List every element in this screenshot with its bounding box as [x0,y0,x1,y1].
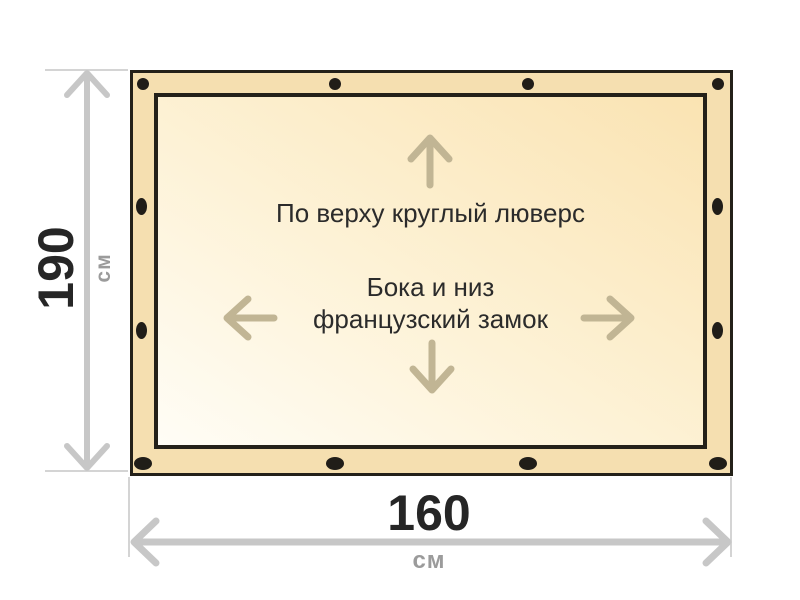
grommet-icon [712,322,723,339]
annotation-sides-line2: французский замок [154,303,707,335]
height-unit-label: см [93,238,115,298]
grommet-icon [329,78,341,90]
grommet-icon [326,457,344,470]
arrow-down-icon [406,339,458,395]
height-value-label: 190 [30,188,82,348]
width-unit-label: см [379,549,479,573]
arrow-up-icon [404,133,456,189]
grommet-icon [712,198,723,215]
grommet-icon [134,457,152,470]
grommet-icon [519,457,537,470]
grommet-icon [522,78,534,90]
grommet-icon [709,457,727,470]
annotation-sides-line1: Бока и низ [154,271,707,303]
annotation-top-grommets: По верху круглый люверс [154,197,707,229]
grommet-icon [137,78,149,90]
grommet-icon [712,78,724,90]
diagram-canvas: По верху круглый люверс Бока и низ франц… [0,0,800,600]
grommet-icon [136,198,147,215]
width-value-label: 160 [329,488,529,538]
grommet-icon [136,322,147,339]
